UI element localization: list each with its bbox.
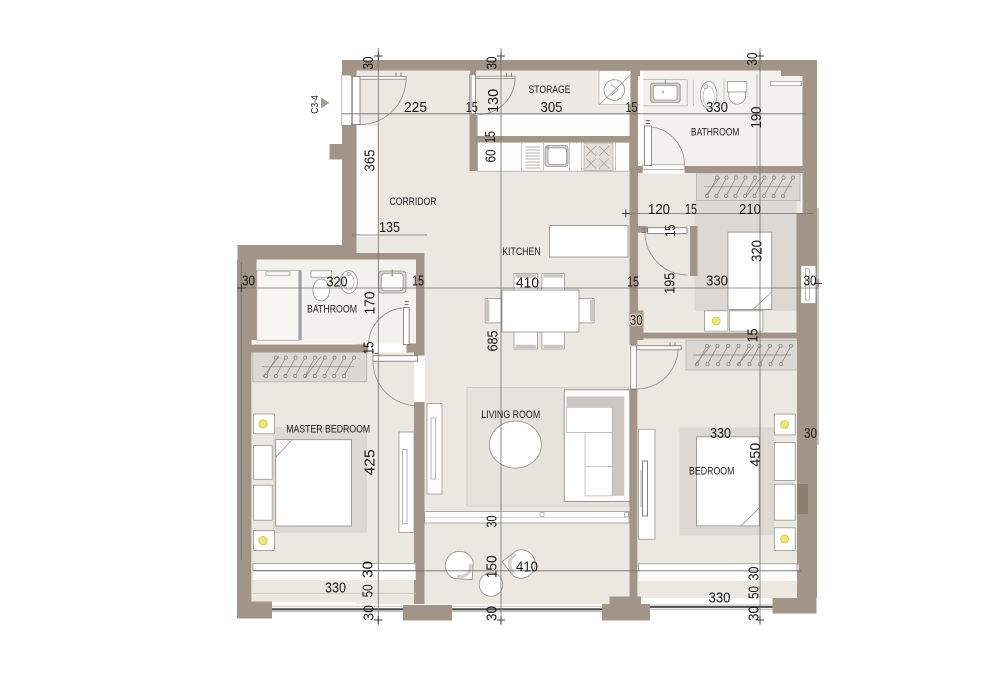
- svg-text:30: 30: [745, 53, 761, 66]
- svg-text:30: 30: [485, 57, 501, 70]
- svg-text:135: 135: [379, 220, 400, 236]
- svg-text:320: 320: [327, 274, 348, 290]
- svg-text:685: 685: [486, 331, 502, 352]
- svg-text:BATHROOM: BATHROOM: [691, 127, 740, 139]
- svg-text:30: 30: [747, 606, 763, 621]
- svg-text:195: 195: [663, 273, 679, 294]
- svg-text:STORAGE: STORAGE: [529, 84, 571, 96]
- svg-text:15: 15: [362, 342, 378, 355]
- svg-text:365: 365: [363, 150, 379, 172]
- svg-text:150: 150: [485, 555, 501, 578]
- svg-text:225: 225: [404, 100, 427, 116]
- svg-text:15: 15: [746, 329, 762, 343]
- svg-text:15: 15: [663, 225, 679, 237]
- svg-text:15: 15: [685, 202, 697, 218]
- svg-text:15: 15: [627, 274, 639, 290]
- svg-text:30: 30: [242, 273, 255, 289]
- svg-text:425: 425: [363, 449, 379, 475]
- svg-text:305: 305: [541, 100, 563, 116]
- svg-text:30: 30: [485, 516, 501, 528]
- svg-text:30: 30: [630, 313, 643, 329]
- svg-text:30: 30: [361, 561, 377, 578]
- svg-text:15: 15: [626, 100, 638, 116]
- svg-text:BATHROOM: BATHROOM: [307, 303, 357, 315]
- svg-text:120: 120: [648, 202, 670, 218]
- svg-text:CORRIDOR: CORRIDOR: [390, 196, 437, 208]
- svg-text:330: 330: [325, 581, 346, 597]
- svg-text:C3-4: C3-4: [309, 95, 321, 114]
- svg-text:30: 30: [804, 426, 817, 442]
- svg-text:410: 410: [516, 275, 539, 291]
- svg-text:15: 15: [412, 273, 424, 289]
- svg-text:50: 50: [361, 584, 377, 597]
- svg-text:60: 60: [484, 150, 500, 163]
- svg-text:330: 330: [710, 426, 731, 442]
- svg-text:320: 320: [750, 240, 766, 262]
- svg-text:170: 170: [363, 292, 379, 315]
- svg-text:330: 330: [709, 591, 731, 607]
- svg-text:30: 30: [362, 605, 378, 621]
- svg-text:130: 130: [486, 89, 502, 113]
- svg-text:210: 210: [739, 202, 761, 218]
- svg-text:30: 30: [361, 57, 377, 70]
- svg-text:LIVING ROOM: LIVING ROOM: [481, 409, 540, 421]
- svg-text:450: 450: [748, 443, 764, 467]
- svg-text:50: 50: [747, 586, 763, 599]
- svg-text:15: 15: [483, 131, 499, 143]
- svg-text:KITCHEN: KITCHEN: [502, 246, 541, 258]
- svg-text:330: 330: [706, 100, 728, 116]
- svg-text:30: 30: [804, 273, 817, 289]
- svg-text:330: 330: [706, 273, 728, 289]
- svg-text:30: 30: [485, 606, 501, 621]
- svg-text:MASTER BEDROOM: MASTER BEDROOM: [286, 424, 370, 436]
- svg-text:410: 410: [516, 560, 538, 576]
- svg-text:190: 190: [749, 107, 765, 129]
- svg-text:15: 15: [466, 100, 478, 116]
- svg-text:BEDROOM: BEDROOM: [689, 466, 735, 478]
- svg-text:30: 30: [747, 567, 763, 581]
